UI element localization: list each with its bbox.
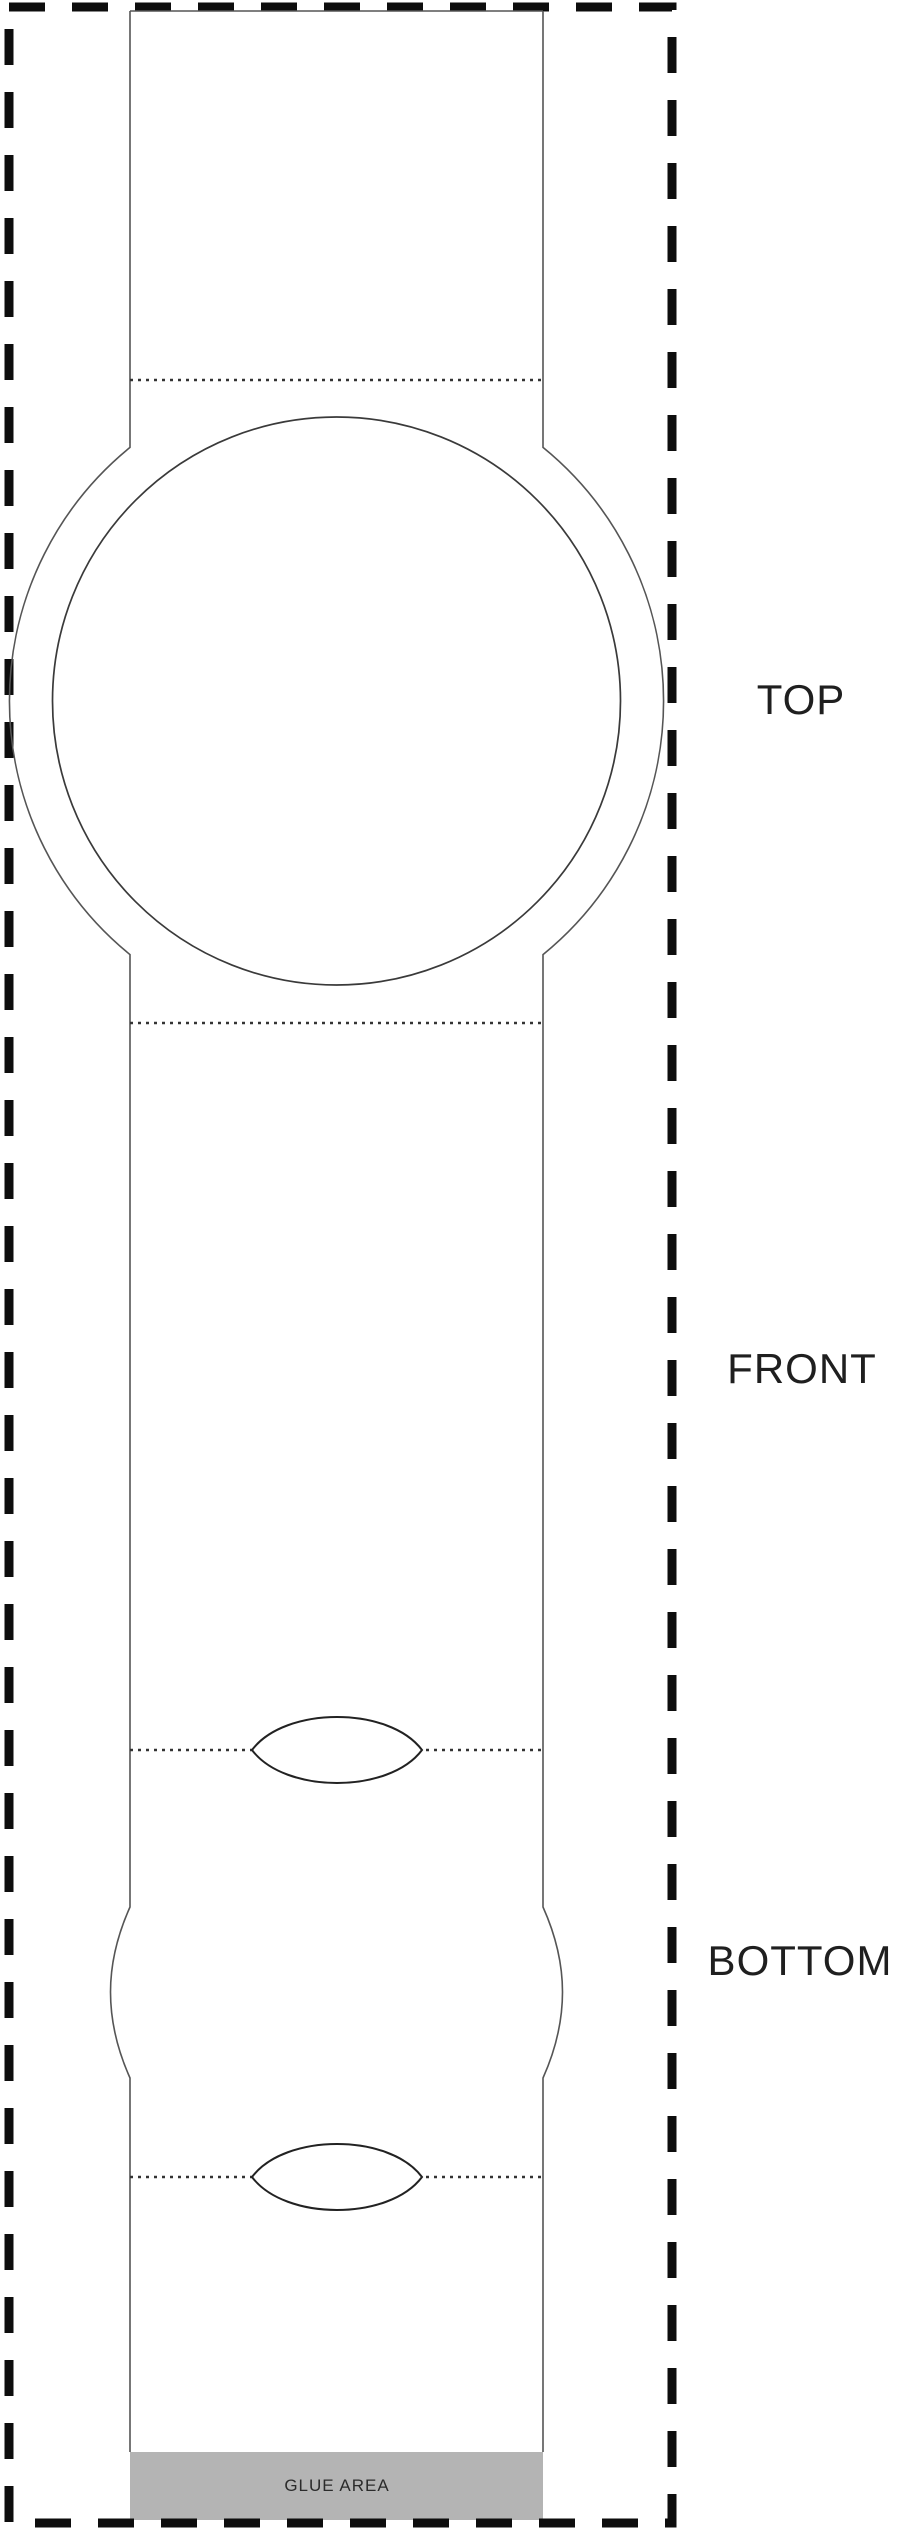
face-circle	[53, 417, 621, 985]
lens-cutout-2	[252, 2144, 422, 2210]
strip-right-outline	[543, 11, 664, 2452]
template-drawing	[0, 0, 900, 2531]
strip-left-outline	[9, 11, 130, 2452]
label-bottom: BOTTOM	[708, 1937, 893, 1985]
template-canvas: TOP FRONT BOTTOM GLUE AREA	[0, 0, 900, 2531]
label-top: TOP	[757, 676, 846, 724]
glue-area-label: GLUE AREA	[284, 2476, 389, 2496]
lens-cutout-1	[252, 1717, 422, 1783]
label-front: FRONT	[727, 1345, 877, 1393]
